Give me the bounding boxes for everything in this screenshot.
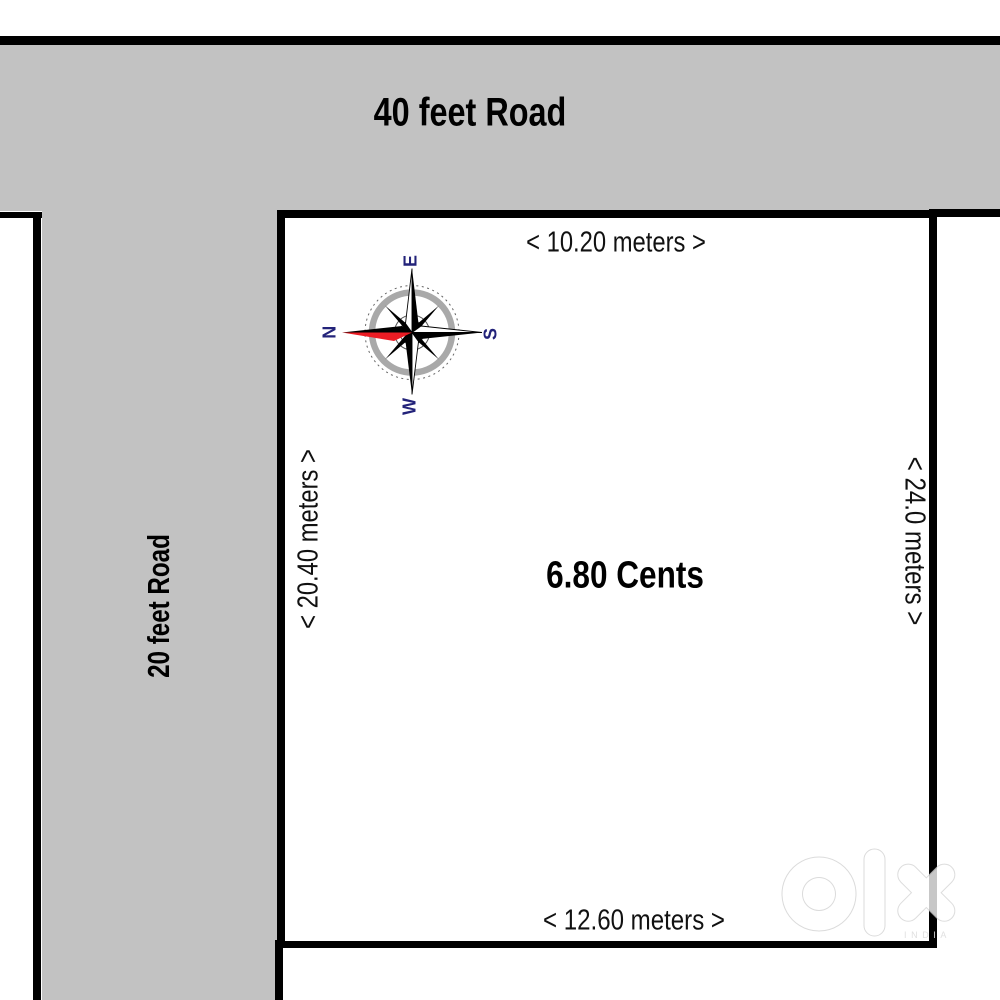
svg-text:INDIA: INDIA xyxy=(904,930,951,940)
svg-text:N: N xyxy=(320,326,340,339)
svg-text:E: E xyxy=(401,255,421,267)
svg-text:S: S xyxy=(481,328,501,340)
svg-text:W: W xyxy=(400,398,420,415)
